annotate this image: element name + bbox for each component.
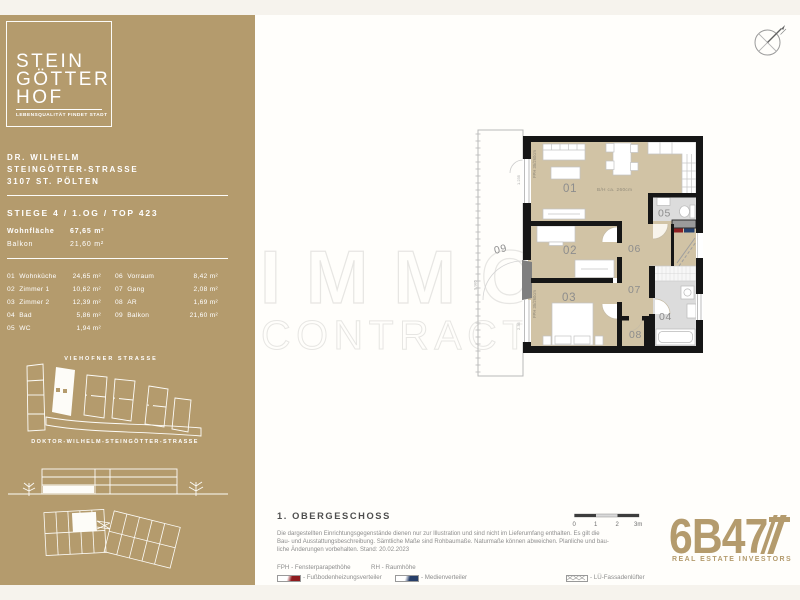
svg-text:07: 07 <box>628 284 641 296</box>
svg-text:01: 01 <box>563 183 577 195</box>
svg-text:05: 05 <box>658 208 671 220</box>
svg-text:1: 1 <box>594 522 598 528</box>
svg-text:FPH 35/260cm: FPH 35/260cm <box>532 290 537 318</box>
svg-text:04: 04 <box>659 311 672 323</box>
svg-text:06: 06 <box>628 243 641 255</box>
svg-text:FPH 35/260cm: FPH 35/260cm <box>532 150 537 178</box>
svg-text:08: 08 <box>629 329 642 341</box>
svg-text:03: 03 <box>562 292 576 304</box>
svg-text:B/H ca. 260cm: B/H ca. 260cm <box>597 187 632 192</box>
svg-text:2: 2 <box>616 522 620 528</box>
svg-text:2.35: 2.35 <box>516 321 521 330</box>
svg-text:9.985: 9.985 <box>473 279 478 290</box>
svg-text:3m: 3m <box>634 522 642 528</box>
svg-text:0: 0 <box>573 522 577 528</box>
svg-text:02: 02 <box>563 245 577 257</box>
svg-text:1.235: 1.235 <box>516 174 521 185</box>
svg-text:09: 09 <box>493 242 509 257</box>
